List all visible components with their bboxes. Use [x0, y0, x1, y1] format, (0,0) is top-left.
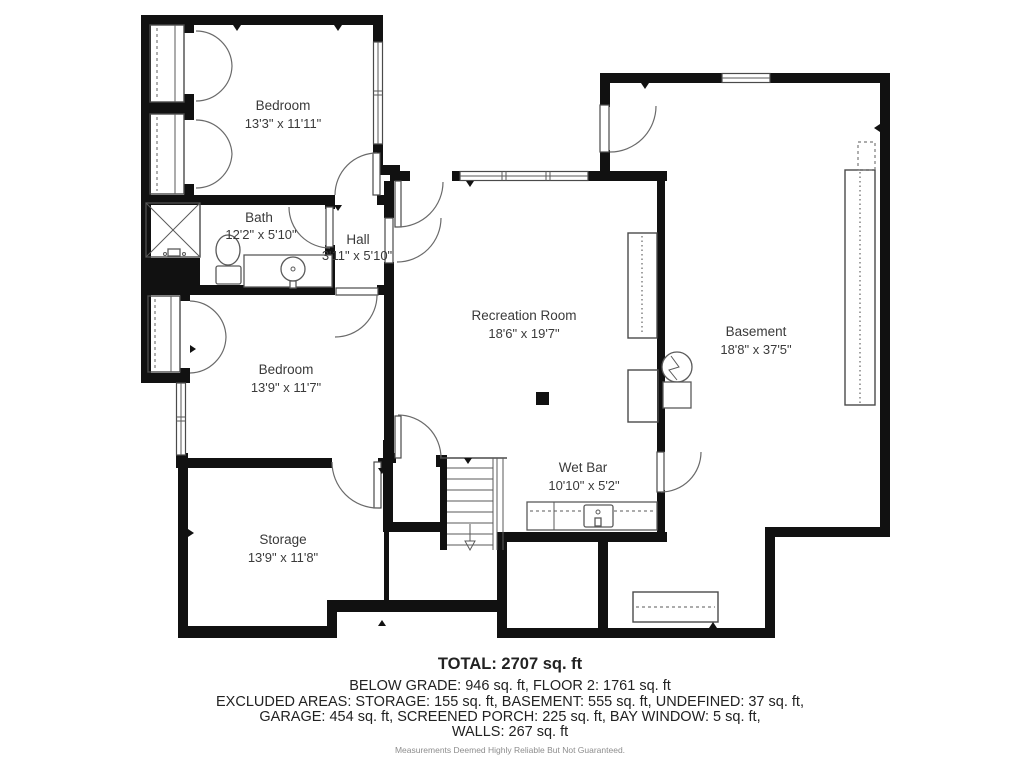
bedroom2-door — [335, 288, 378, 337]
rec-builtin-shelves — [628, 233, 658, 422]
summary-below-grade: BELOW GRADE: 946 sq. ft, FLOOR 2: 1761 s… — [349, 678, 671, 694]
summary-garage: GARAGE: 454 sq. ft, SCREENED PORCH: 225 … — [259, 709, 760, 725]
summary-disclaimer: Measurements Deemed Highly Reliable But … — [395, 745, 625, 755]
summary-total: TOTAL: 2707 sq. ft — [438, 655, 583, 673]
closet2-double-doors — [190, 301, 226, 373]
rec-to-basement-door — [657, 452, 701, 492]
room-dims: 13'9" x 11'7" — [251, 380, 322, 395]
rec-to-vestibule-door — [395, 415, 441, 458]
basement-window — [722, 74, 770, 83]
storage-door — [332, 462, 381, 508]
toilet-icon — [216, 235, 241, 284]
basement-lower-shelf — [633, 592, 718, 622]
room-labels: Bedroom 13'3" x 11'11" Bath 12'2" x 5'10… — [225, 98, 792, 565]
bedroom1-door — [335, 153, 380, 195]
room-label-bedroom2: Bedroom 13'9" x 11'7" — [251, 362, 322, 395]
room-dims: 13'3" x 11'11" — [245, 116, 322, 131]
room-dims: 18'6" x 19'7" — [488, 326, 560, 341]
furnace-icon — [663, 382, 691, 408]
room-label-bath: Bath 12'2" x 5'10" — [225, 210, 297, 242]
room-name: Recreation Room — [471, 308, 576, 323]
room-name: Hall — [346, 232, 369, 247]
room-label-bedroom1: Bedroom 13'3" x 11'11" — [245, 98, 322, 131]
shower-icon — [146, 203, 200, 257]
room-label-recreation: Recreation Room 18'6" x 19'7" — [471, 308, 576, 341]
exterior-door-rec-top — [395, 181, 443, 227]
room-dims: 13'9" x 11'8" — [248, 550, 319, 565]
summary-excluded: EXCLUDED AREAS: STORAGE: 155 sq. ft, BAS… — [216, 694, 804, 710]
room-name: Storage — [259, 532, 306, 547]
summary-walls: WALLS: 267 sq. ft — [452, 724, 568, 740]
room-dims: 12'2" x 5'10" — [225, 227, 297, 242]
closet1-double-doors — [196, 31, 232, 188]
support-column — [536, 392, 549, 405]
wet-bar-counter — [527, 502, 657, 530]
bedroom2-window — [177, 383, 186, 455]
bedroom1-window — [374, 42, 383, 144]
room-label-basement: Basement 18'8" x 37'5" — [720, 324, 792, 357]
area-summary: TOTAL: 2707 sq. ft BELOW GRADE: 946 sq. … — [216, 655, 804, 755]
recreation-room-window — [460, 172, 588, 181]
room-dims: 10'10" x 5'2" — [548, 478, 620, 493]
floor-plan-page: Bedroom 13'3" x 11'11" Bath 12'2" x 5'10… — [0, 0, 1024, 768]
basement-builtin-shelf — [845, 142, 875, 405]
room-name: Wet Bar — [559, 460, 608, 475]
room-dims: 3'11" x 5'10" — [322, 248, 393, 263]
room-dims: 18'8" x 37'5" — [720, 342, 792, 357]
room-name: Bedroom — [259, 362, 314, 377]
room-label-wetbar: Wet Bar 10'10" x 5'2" — [548, 460, 620, 493]
floor-plan-drawing: Bedroom 13'3" x 11'11" Bath 12'2" x 5'10… — [0, 0, 1024, 768]
bath-sink-icon — [244, 255, 332, 288]
bedroom2-closet — [148, 296, 180, 372]
stairs — [440, 458, 507, 550]
basement-side-door — [600, 105, 656, 152]
room-name: Bedroom — [256, 98, 311, 113]
room-name: Bath — [245, 210, 273, 225]
room-name: Basement — [726, 324, 787, 339]
water-heater-icon — [662, 352, 692, 382]
room-label-storage: Storage 13'9" x 11'8" — [248, 532, 319, 565]
